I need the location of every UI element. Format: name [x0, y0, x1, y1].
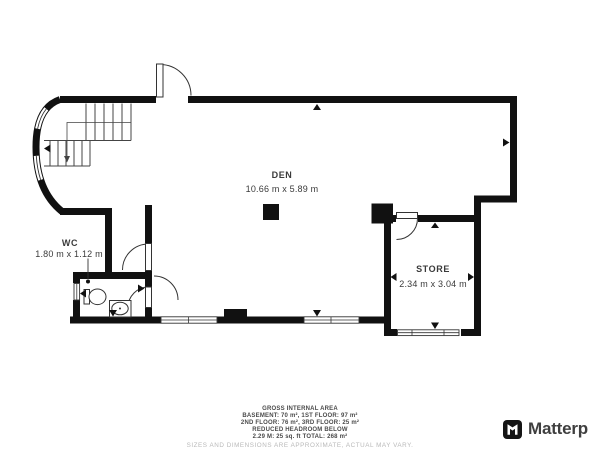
sink-drain [119, 308, 121, 310]
wc-leader-dot [86, 280, 90, 284]
store-door-leaf [397, 213, 418, 219]
room-label-store: STORE [416, 264, 450, 274]
room-label-wc: WC [62, 238, 78, 248]
chimney-breast [224, 309, 247, 319]
store-corner-pier [372, 204, 394, 224]
matterport-logo: Matterp [503, 419, 588, 439]
toilet-bowl [89, 289, 106, 305]
area-summary-title: GROSS INTERNAL AREA [0, 406, 600, 413]
room-dims-den: 10.66 m x 5.89 m [246, 184, 319, 194]
room-dims-wc: 1.80 m x 1.12 m [35, 249, 103, 259]
den-column [263, 204, 279, 220]
wc-door-leaf [146, 287, 152, 308]
disclaimer-text: SIZES AND DIMENSIONS ARE APPROXIMATE, AC… [0, 442, 600, 449]
stair-direction-arrow [64, 156, 70, 163]
room-label-den: DEN [272, 170, 293, 180]
matterport-flag-icon [503, 420, 522, 439]
room-dims-store: 2.34 m x 3.04 m [399, 279, 467, 289]
floorplan-drawing [0, 0, 600, 450]
windows [74, 284, 459, 336]
hall-door-leaf [146, 244, 152, 271]
staircase [44, 104, 131, 167]
entry-door-leaf [157, 64, 164, 97]
matterport-logo-text: Matterp [528, 419, 588, 439]
